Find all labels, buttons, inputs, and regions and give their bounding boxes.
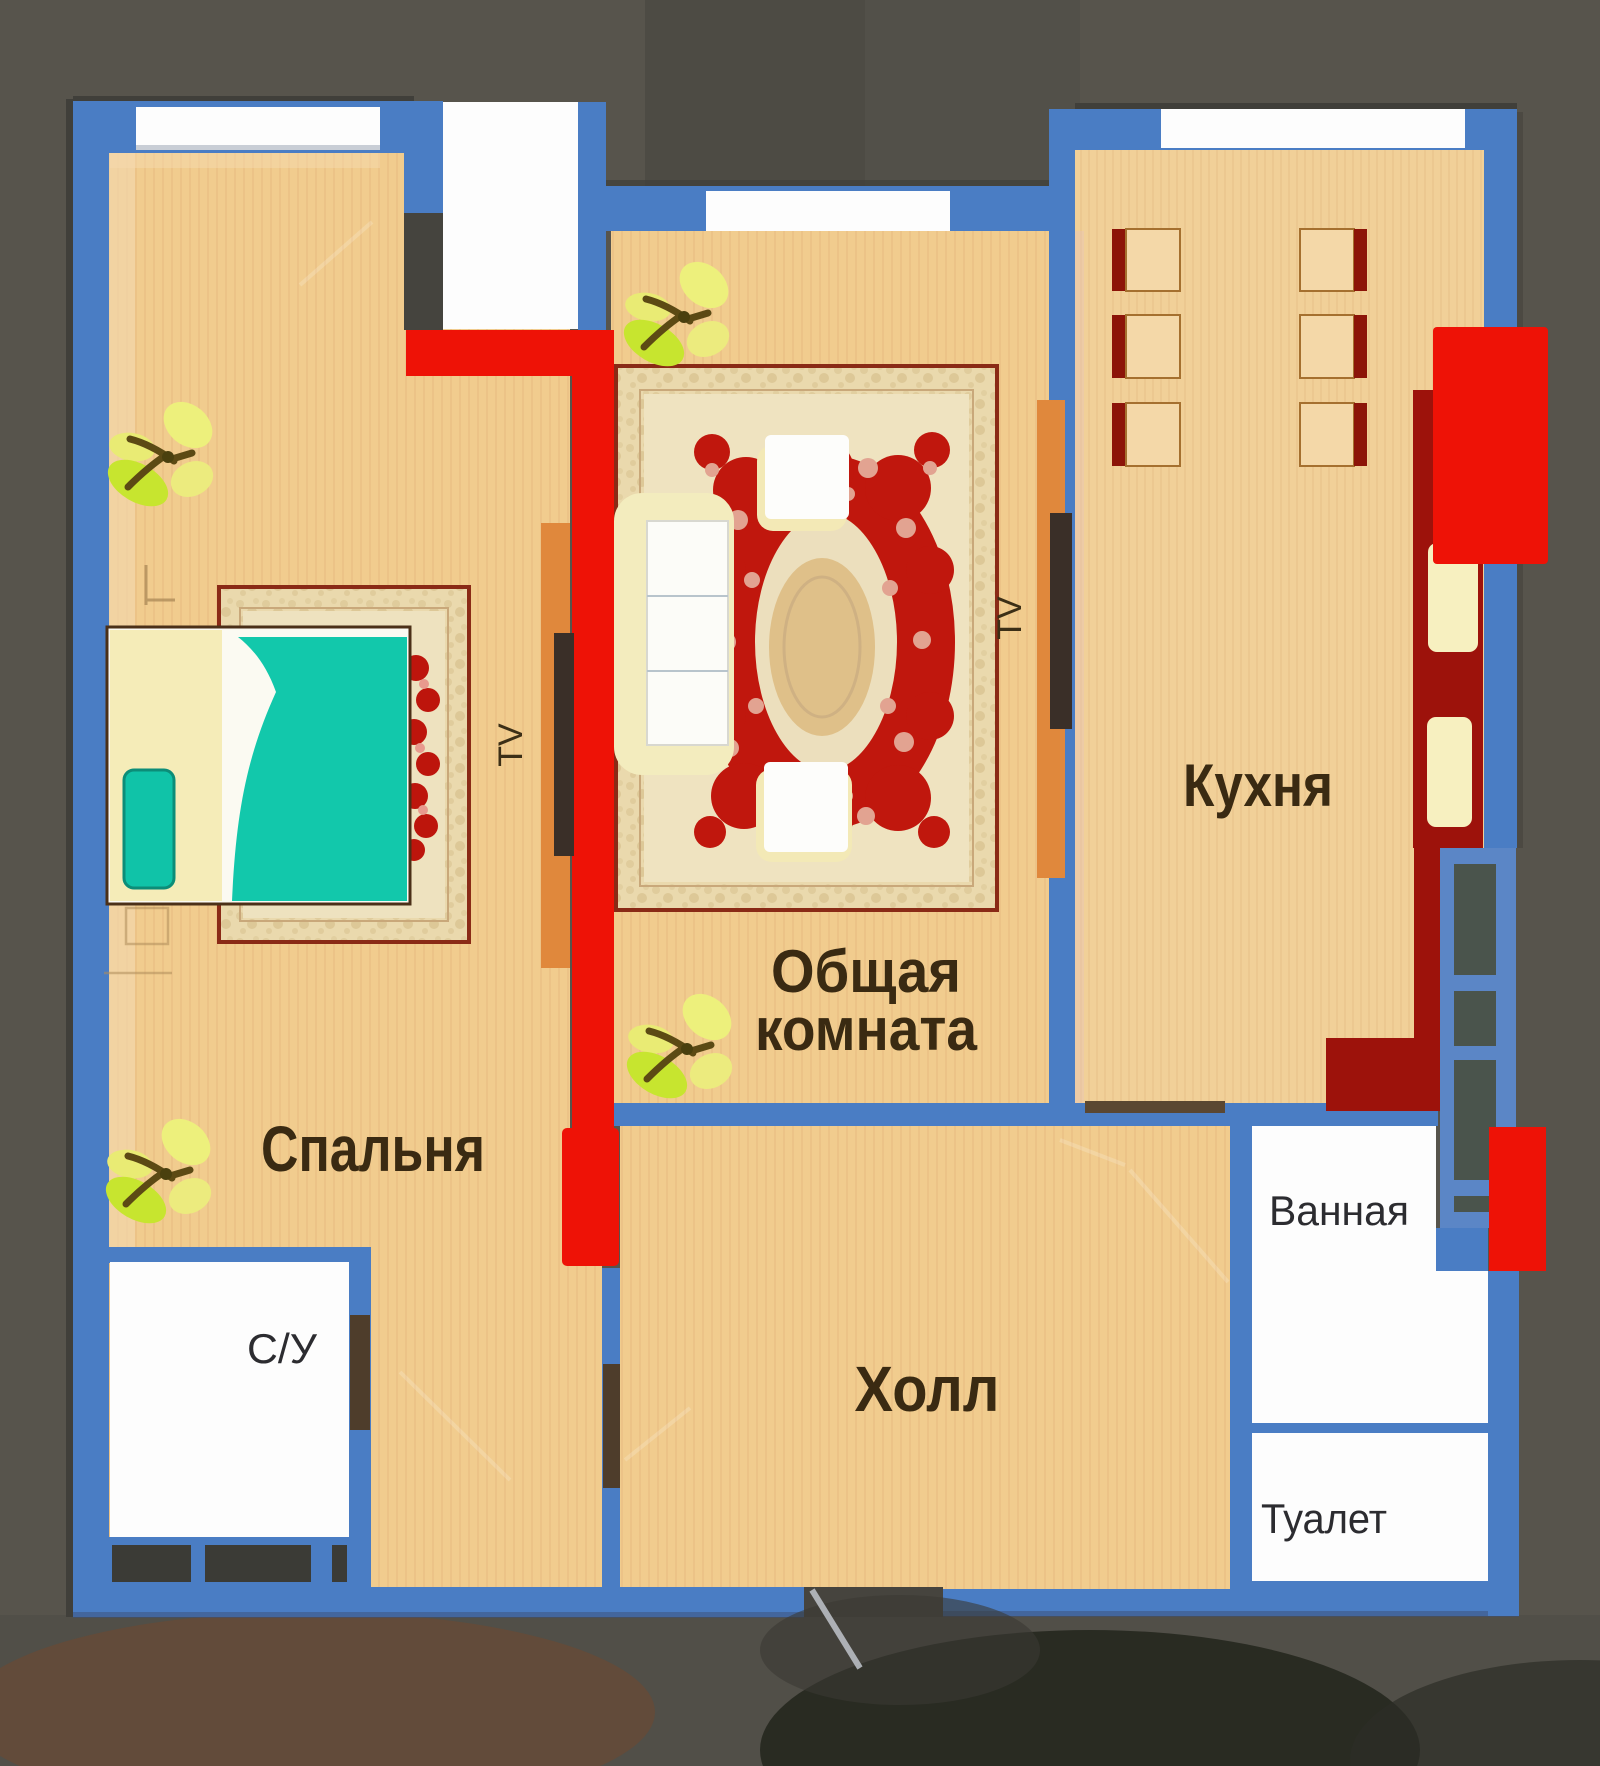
svg-text:TV: TV (492, 723, 530, 767)
svg-text:Холл: Холл (855, 1353, 1000, 1425)
svg-text:Туалет: Туалет (1261, 1495, 1387, 1542)
svg-text:С/У: С/У (247, 1325, 317, 1372)
svg-text:Кухня: Кухня (1183, 752, 1333, 819)
svg-text:TV: TV (991, 596, 1029, 640)
svg-text:Общая: Общая (771, 938, 961, 1005)
svg-text:Спальня: Спальня (261, 1113, 485, 1185)
svg-text:Ванная: Ванная (1269, 1187, 1409, 1234)
svg-text:комната: комната (755, 996, 978, 1063)
